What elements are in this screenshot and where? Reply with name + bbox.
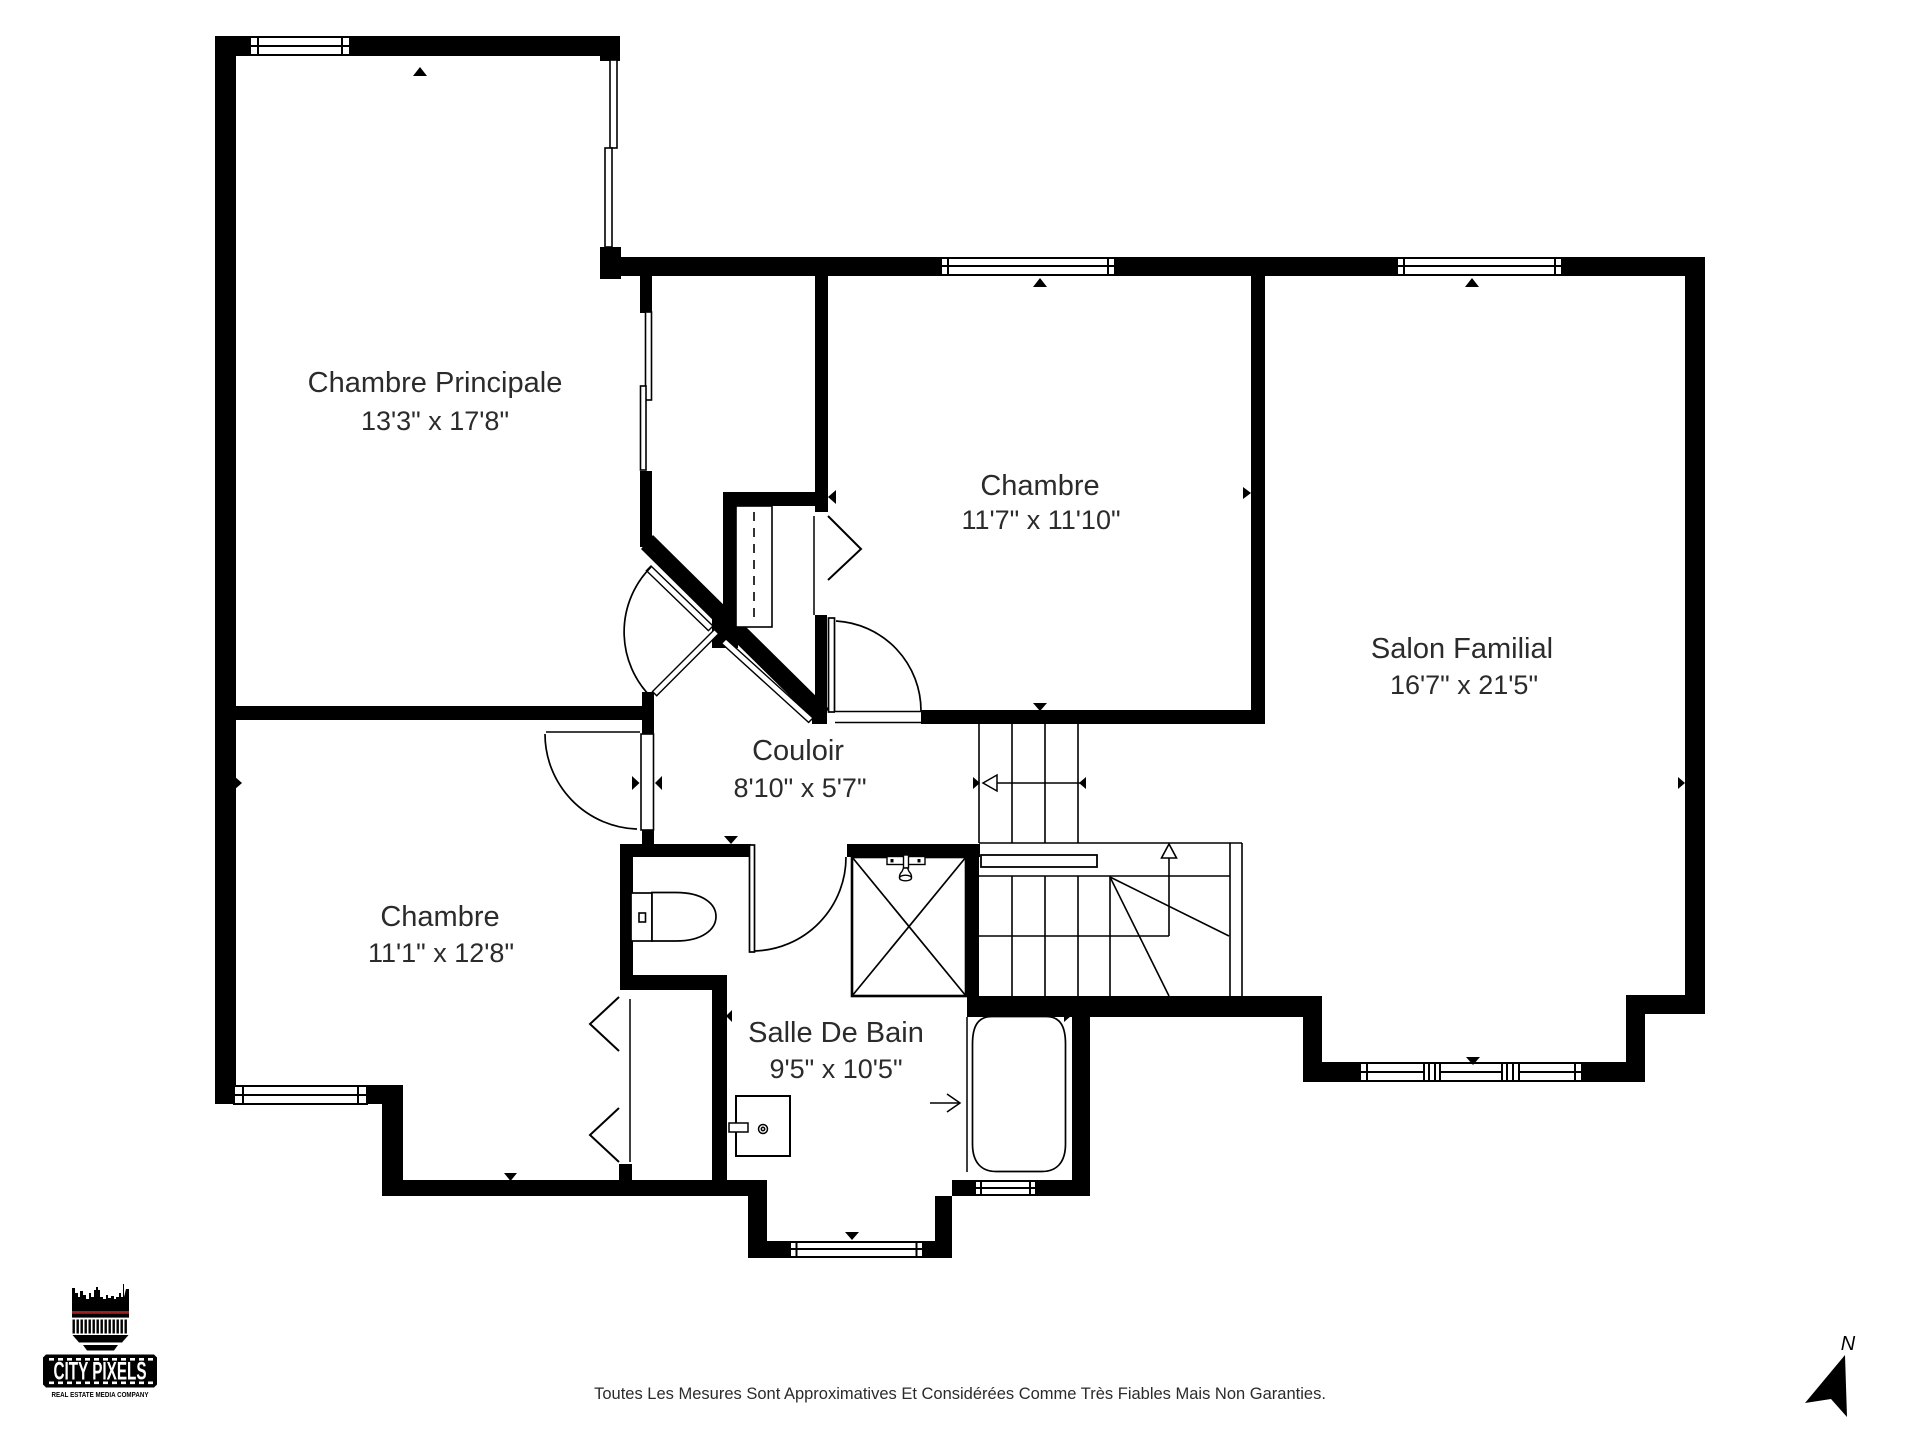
svg-text:11'7" x 11'10": 11'7" x 11'10" — [961, 505, 1120, 535]
svg-text:8'10" x 5'7": 8'10" x 5'7" — [733, 773, 866, 803]
svg-text:Chambre: Chambre — [980, 470, 1099, 502]
svg-text:13'3" x 17'8": 13'3" x 17'8" — [361, 406, 509, 436]
svg-text:Chambre: Chambre — [380, 901, 499, 933]
svg-text:REAL ESTATE MEDIA COMPANY: REAL ESTATE MEDIA COMPANY — [52, 1392, 149, 1399]
svg-text:11'1" x 12'8": 11'1" x 12'8" — [368, 938, 514, 968]
svg-text:Toutes Les Mesures Sont Approx: Toutes Les Mesures Sont Approximatives E… — [594, 1385, 1326, 1403]
svg-text:Salon Familial: Salon Familial — [1371, 633, 1553, 665]
svg-text:Chambre Principale: Chambre Principale — [308, 367, 563, 399]
svg-text:Couloir: Couloir — [752, 735, 844, 767]
svg-text:N: N — [1841, 1333, 1856, 1355]
svg-text:9'5" x 10'5": 9'5" x 10'5" — [769, 1054, 902, 1084]
svg-text:16'7" x 21'5": 16'7" x 21'5" — [1390, 670, 1538, 700]
svg-text:CITY PIXELS: CITY PIXELS — [54, 1358, 147, 1386]
svg-text:Salle De Bain: Salle De Bain — [748, 1017, 924, 1049]
